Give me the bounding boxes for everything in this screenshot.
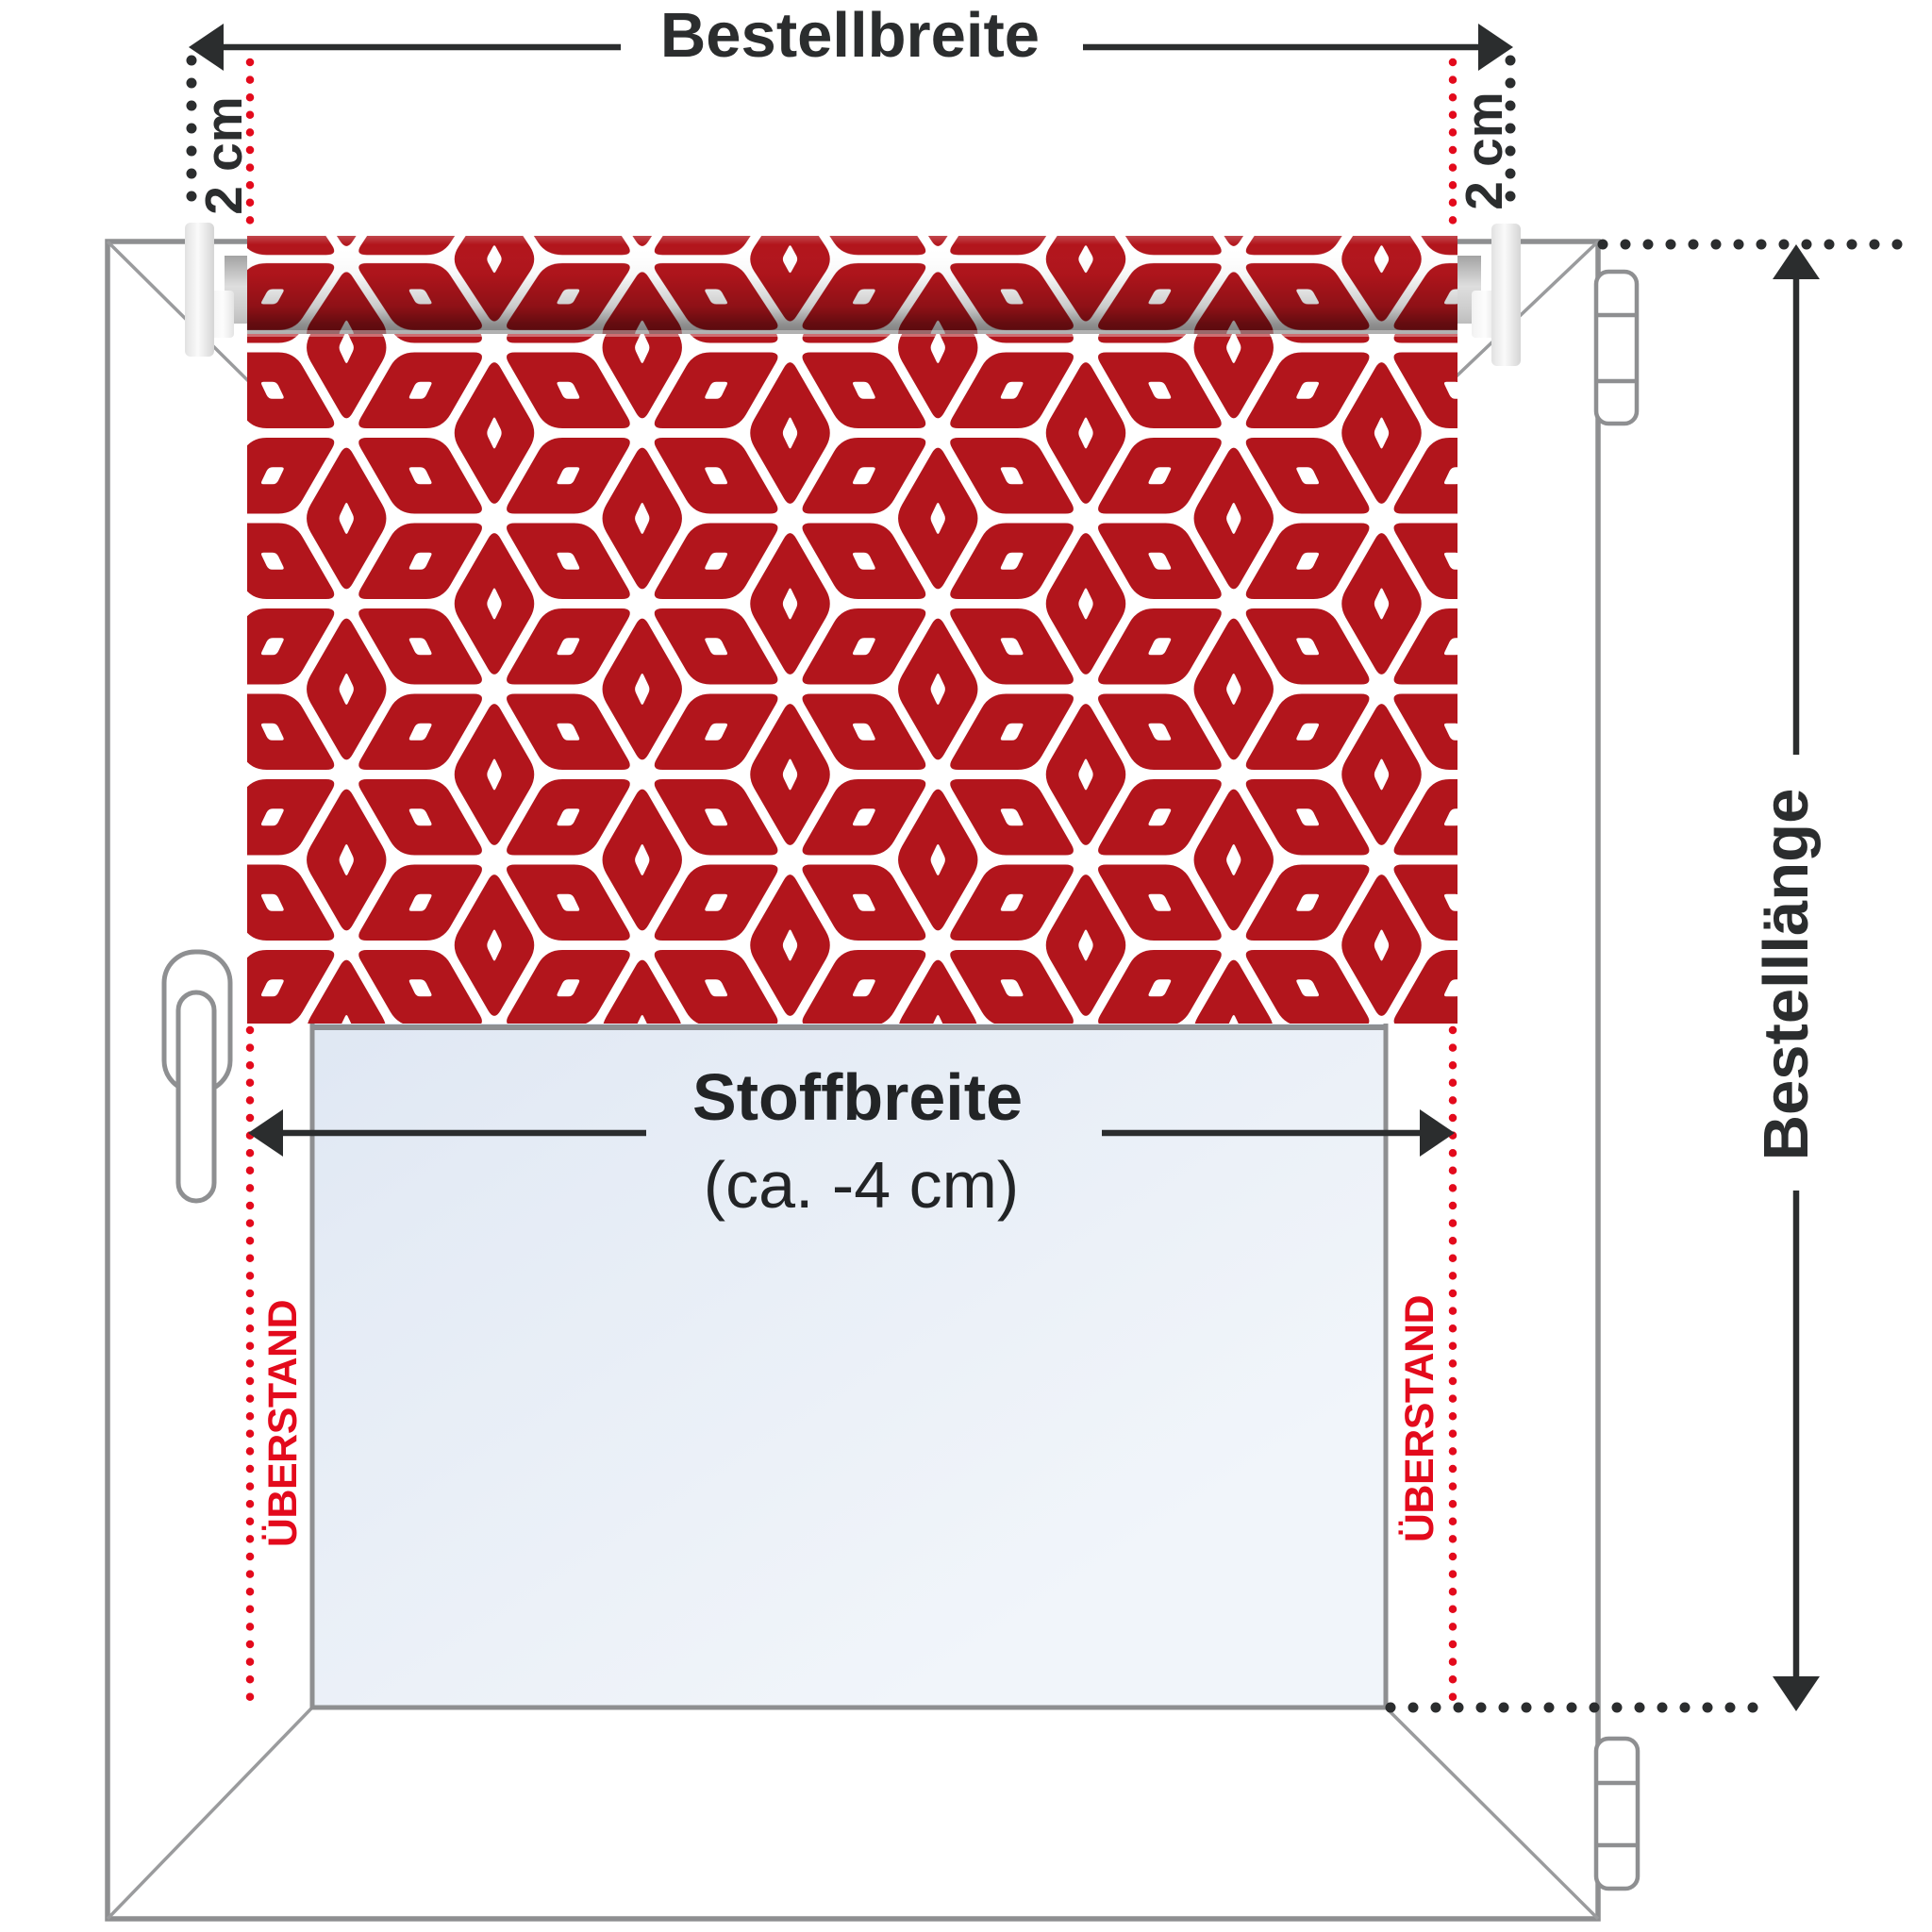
svg-text:Stoffbreite: Stoffbreite [692, 1060, 1023, 1134]
svg-text:2 cm: 2 cm [1455, 92, 1513, 209]
svg-text:ÜBERSTAND: ÜBERSTAND [260, 1300, 306, 1547]
svg-text:2 cm: 2 cm [194, 96, 253, 214]
svg-text:(ca. -4 cm): (ca. -4 cm) [704, 1148, 1019, 1222]
svg-text:ÜBERSTAND: ÜBERSTAND [1397, 1295, 1442, 1542]
svg-text:Bestelllänge: Bestelllänge [1751, 789, 1822, 1161]
svg-text:Bestellbreite: Bestellbreite [660, 0, 1040, 71]
